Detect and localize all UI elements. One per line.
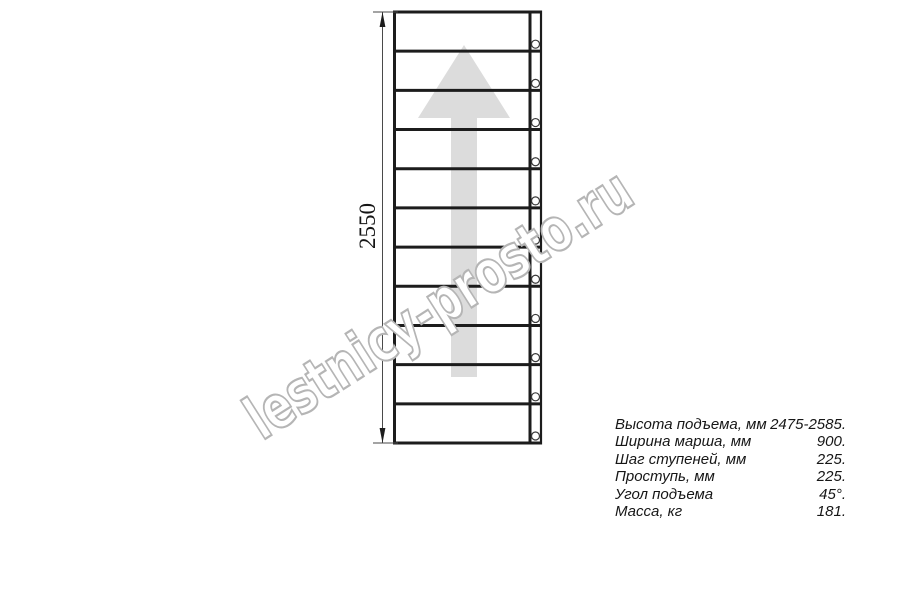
spec-row: Шаг ступеней, мм225. xyxy=(615,451,846,468)
specs-table: Высота подъема, мм2475-2585.Ширина марша… xyxy=(615,416,846,520)
spec-label: Масса, кг xyxy=(615,503,682,520)
spec-value: 225. xyxy=(817,468,846,485)
dimension-arrow-up-icon xyxy=(380,12,386,27)
spec-value: 2475-2585. xyxy=(770,416,846,433)
step-mount-hole-icon xyxy=(532,314,540,322)
spec-row: Высота подъема, мм2475-2585. xyxy=(615,416,846,433)
spec-value: 900. xyxy=(817,433,846,450)
spec-label: Шаг ступеней, мм xyxy=(615,451,746,468)
dimension-label: 2550 xyxy=(355,203,380,249)
watermark-text: lestnicy-prosto.ru xyxy=(232,156,645,454)
step-mount-hole-icon xyxy=(532,119,540,127)
spec-value: 45°. xyxy=(819,486,846,503)
step-mount-hole-icon xyxy=(532,354,540,362)
stair-drawing-page: 2550lestnicy-prosto.ru Высота подъема, м… xyxy=(0,0,900,600)
spec-value: 181. xyxy=(817,503,846,520)
spec-row: Угол подъема45°. xyxy=(615,486,846,503)
spec-label: Ширина марша, мм xyxy=(615,433,751,450)
step-mount-hole-icon xyxy=(532,158,540,166)
spec-row: Ширина марша, мм900. xyxy=(615,433,846,450)
step-mount-hole-icon xyxy=(532,393,540,401)
step-mount-hole-icon xyxy=(532,79,540,87)
spec-row: Проступь, мм225. xyxy=(615,468,846,485)
dimension-arrow-down-icon xyxy=(380,428,386,443)
spec-row: Масса, кг181. xyxy=(615,503,846,520)
spec-label: Проступь, мм xyxy=(615,468,715,485)
spec-value: 225. xyxy=(817,451,846,468)
step-mount-hole-icon xyxy=(532,432,540,440)
spec-label: Высота подъема, мм xyxy=(615,416,767,433)
step-mount-hole-icon xyxy=(532,40,540,48)
spec-label: Угол подъема xyxy=(615,486,713,503)
